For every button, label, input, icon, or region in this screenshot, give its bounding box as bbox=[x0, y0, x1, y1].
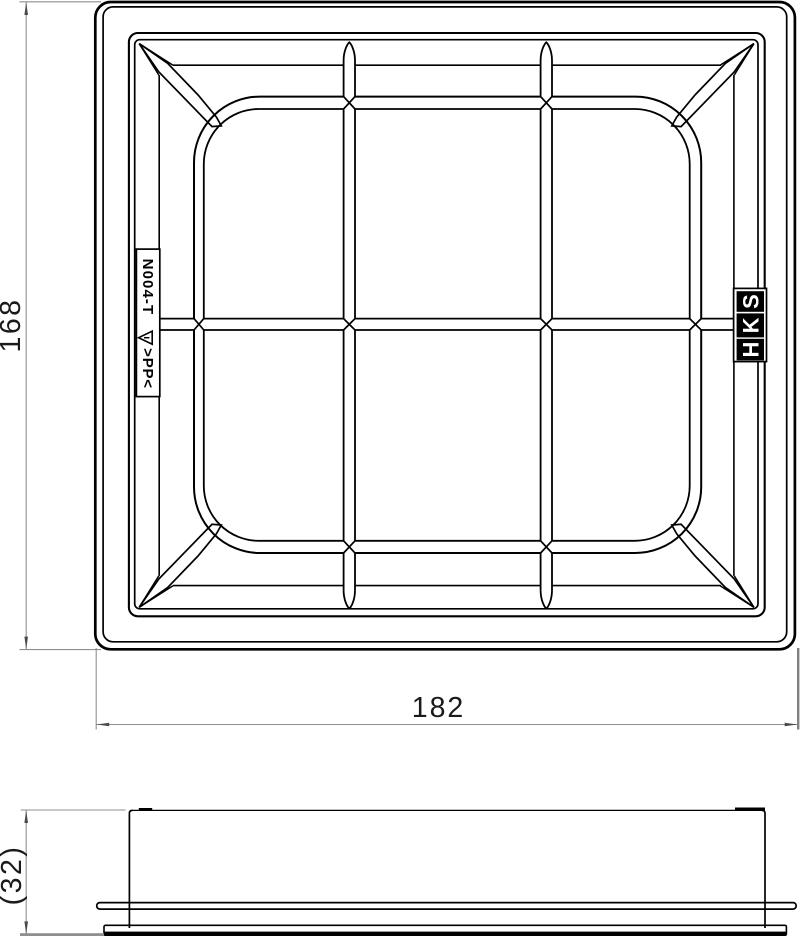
svg-text:H: H bbox=[738, 342, 763, 358]
svg-text:>PP<: >PP< bbox=[139, 348, 156, 389]
svg-text:182: 182 bbox=[412, 692, 466, 724]
svg-text:N004-T: N004-T bbox=[139, 259, 156, 316]
svg-text:168: 168 bbox=[0, 297, 27, 352]
svg-text:(32): (32) bbox=[0, 845, 28, 906]
svg-text:S: S bbox=[738, 294, 763, 309]
svg-text:K: K bbox=[738, 317, 763, 333]
